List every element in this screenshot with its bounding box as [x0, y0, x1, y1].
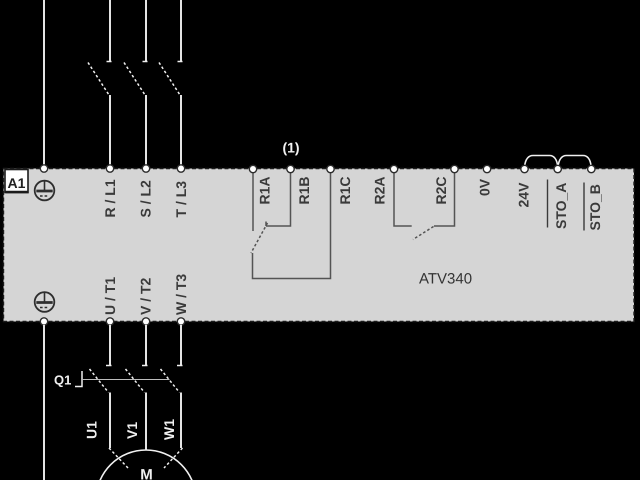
svg-text:0V: 0V [477, 178, 493, 196]
svg-text:R2C: R2C [433, 176, 449, 204]
svg-text:W1: W1 [161, 419, 177, 440]
svg-text:(1): (1) [282, 139, 299, 155]
svg-text:U1: U1 [84, 421, 100, 439]
svg-text:STO_B: STO_B [587, 184, 603, 230]
svg-text:W / T3: W / T3 [173, 274, 189, 315]
svg-text:A1: A1 [8, 175, 26, 191]
svg-text:R1A: R1A [257, 176, 273, 204]
svg-text:24V: 24V [516, 182, 532, 208]
svg-text:R / L1: R / L1 [102, 179, 118, 217]
svg-text:Q1: Q1 [54, 373, 71, 388]
svg-text:R2A: R2A [372, 176, 388, 204]
svg-text:T / L3: T / L3 [173, 181, 189, 218]
svg-text:R1C: R1C [337, 176, 353, 204]
svg-text:V / T2: V / T2 [138, 277, 154, 315]
svg-text:STO_A: STO_A [553, 183, 569, 229]
svg-text:R1B: R1B [296, 176, 312, 204]
svg-text:ATV340: ATV340 [419, 271, 472, 288]
svg-text:M: M [140, 467, 153, 480]
svg-text:V1: V1 [124, 422, 140, 439]
svg-text:S / L2: S / L2 [138, 180, 154, 218]
svg-text:U / T1: U / T1 [102, 277, 118, 315]
